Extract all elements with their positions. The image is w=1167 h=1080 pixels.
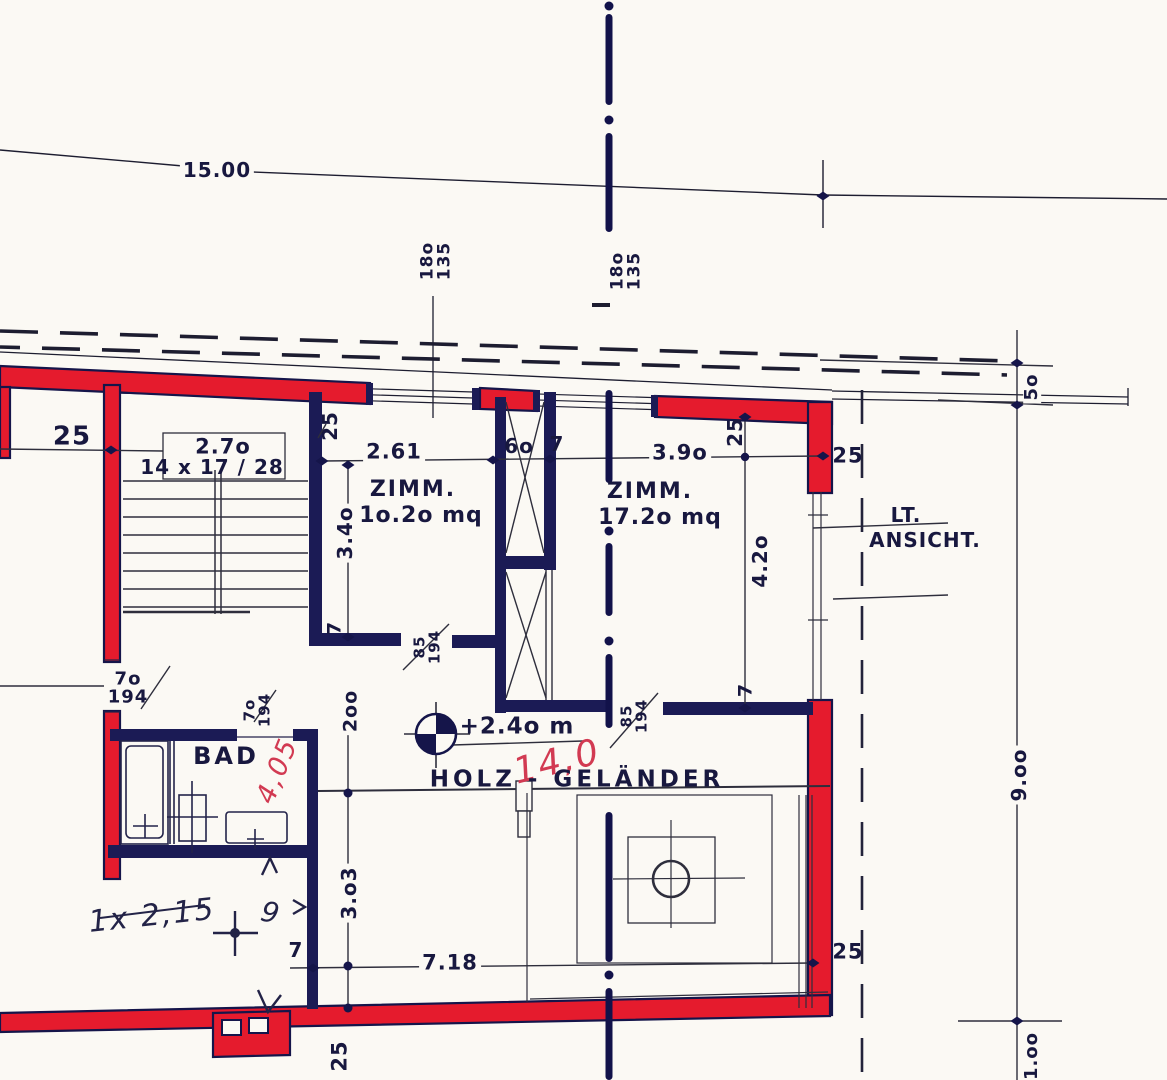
room-bad-name: BAD [193,745,259,769]
room-left-name: ZIMM. [370,479,456,501]
door-hall-spec: 7o 194 [108,670,149,705]
skylight [613,820,745,928]
dim-flue-width: 6o [504,437,534,457]
dim-gallery-depth: 3.o3 [340,863,360,922]
centerline [605,2,614,1080]
window-spec-left: 18o 135 [419,242,452,281]
dim-corner-25-horizontal: 25 [832,446,863,467]
railing-label: HOLZ - GELÄNDER [430,769,725,792]
dim-stair-wall-25: 25 [321,411,341,441]
stair-step-formula: 14 x 17 / 28 [140,458,284,478]
dimension-lines [0,192,1062,1080]
floor-plan-canvas: 15.00 18o 135 18o 135 25 2.7o 14 x 17 / … [0,0,1167,1080]
dim-wall-left-25: 25 [53,424,91,449]
dim-right-room-depth: 4.2o [751,531,771,590]
dim-right-9m: 9.oo [1010,746,1030,805]
door-left-room-spec: 85 194 [412,630,441,664]
dim-gallery-25: 25 [832,942,863,963]
stair-width: 2.7o [195,437,251,458]
dim-right-room-wall-7: 7 [737,683,756,697]
dim-markers [105,192,1024,1026]
room-right-name: ZIMM. [607,481,693,503]
dim-right-room-width: 3.9o [649,443,711,464]
dim-flue-wall: 7 [550,435,565,455]
dim-left-room-depth: 3.4o [336,503,356,562]
dim-overall-width: 15.00 [180,161,254,181]
door-bad-spec: 7o 194 [242,693,271,727]
dim-gallery-width: 7.18 [419,953,481,974]
view-ref-ansicht: ANSICHT. [869,531,981,551]
dim-eave-50: 5o [1023,371,1041,404]
dim-gallery-wall-7: 7 [289,941,304,961]
dim-left-room-width: 2.61 [363,442,425,463]
room-left-area: 1o.2o mq [359,505,483,527]
level-mark-text: +2.4o m [460,716,575,739]
dim-left-room-wall-7: 7 [326,621,345,635]
window-spec-center: 18o 135 [609,252,642,291]
dim-corner-25-vertical: 25 [726,417,746,447]
room-right-area: 17.2o mq [598,507,722,529]
view-ref-lt: LT. [891,506,922,526]
dim-landing-200: 2oo [342,687,361,735]
door-right-room-spec: 85 194 [619,699,648,733]
dim-bottom-25: 25 [330,1040,351,1071]
dim-right-1m: 1.oo [1023,1029,1041,1080]
